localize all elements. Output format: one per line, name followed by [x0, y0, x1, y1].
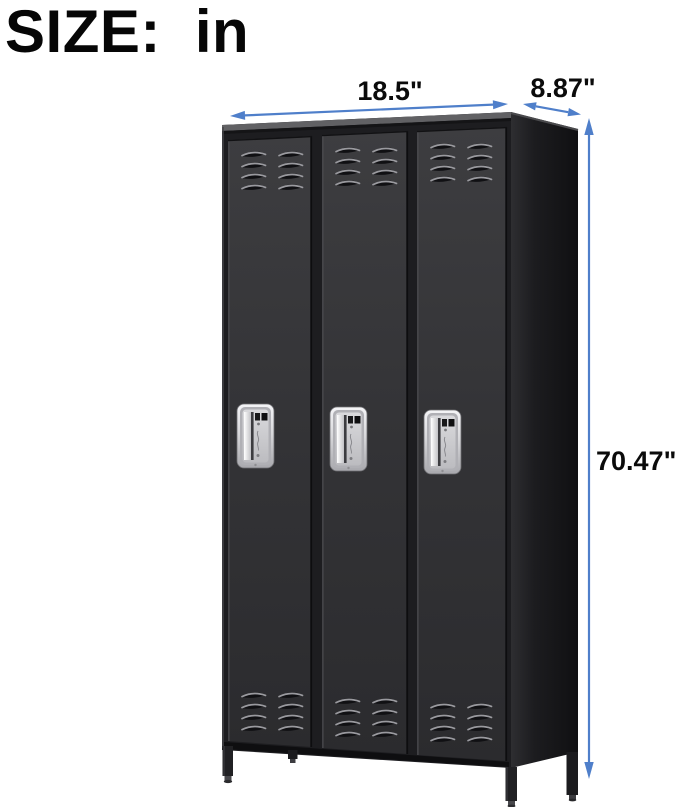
height-dimension: 70.47" [584, 118, 676, 779]
locker-door-left [228, 136, 312, 747]
door-handle-left [237, 404, 274, 468]
depth-dimension-label: 8.87" [530, 73, 595, 103]
leg-front-right [506, 767, 518, 807]
width-dimension-label: 18.5" [357, 76, 422, 106]
width-dimension-arrow [245, 105, 493, 116]
locker-door-right [417, 127, 507, 761]
depth-dimension-arrow [536, 106, 568, 112]
product-dimension-diagram: SIZE: in [0, 0, 679, 807]
height-arrowhead-bottom [584, 762, 593, 779]
leg-front-left [223, 746, 234, 783]
height-dimension-label: 70.47" [596, 446, 676, 476]
locker-side-panel [511, 112, 578, 768]
depth-arrowhead-left [523, 102, 537, 110]
width-arrowhead-right [493, 100, 508, 109]
door-handle-right [424, 410, 461, 474]
door-handle-middle [330, 407, 367, 471]
leg-back-middle [288, 750, 298, 763]
width-dimension: 18.5" [230, 76, 508, 120]
leg-back-right [567, 752, 579, 801]
locker-door-middle [322, 131, 408, 754]
height-arrowhead-top [584, 118, 593, 135]
locker-illustration: 18.5" 8.87" 70.47" [0, 0, 679, 807]
depth-dimension: 8.87" [523, 73, 596, 116]
width-arrowhead-left [230, 111, 245, 120]
depth-arrowhead-right [568, 108, 582, 116]
